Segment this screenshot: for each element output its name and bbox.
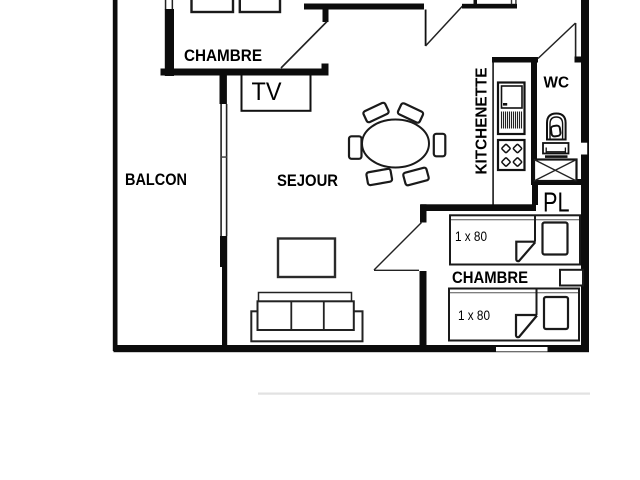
- svg-text:1 x 80: 1 x 80: [458, 308, 490, 323]
- svg-text:1 x 80: 1 x 80: [455, 229, 487, 244]
- svg-text:KITCHENETTE: KITCHENETTE: [474, 67, 491, 174]
- svg-text:TV: TV: [252, 78, 282, 106]
- svg-text:CHAMBRE: CHAMBRE: [452, 268, 528, 287]
- svg-text:SEJOUR: SEJOUR: [277, 172, 338, 190]
- svg-text:PL: PL: [543, 187, 570, 218]
- svg-text:BALCON: BALCON: [125, 171, 187, 189]
- svg-text:WC: WC: [544, 75, 570, 92]
- svg-text:CHAMBRE: CHAMBRE: [184, 46, 262, 65]
